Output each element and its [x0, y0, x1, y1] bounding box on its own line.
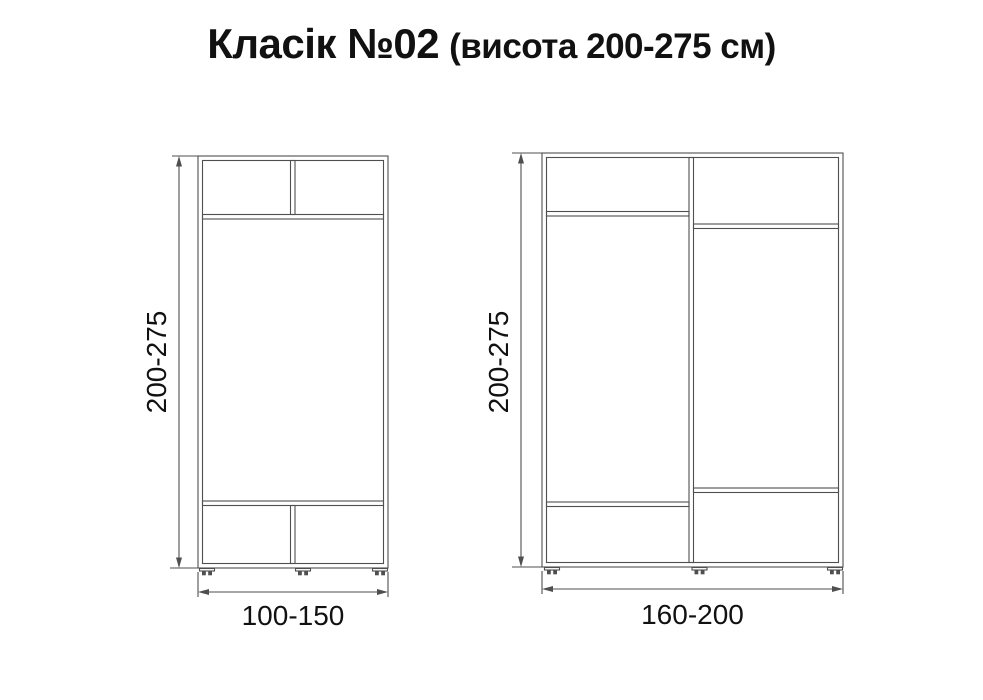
arrow-left-icon: [542, 586, 553, 592]
arrow-right-icon: [377, 589, 388, 595]
cabinet-outline: [198, 156, 388, 568]
height-dimension-label: 200-275: [483, 311, 514, 414]
width-dimension: 100-150: [198, 572, 388, 631]
arrow-up-icon: [176, 156, 182, 167]
wardrobe-diagram: 200-275 100-150: [0, 0, 983, 700]
foot: [545, 568, 560, 575]
cabinet-outline: [542, 153, 843, 567]
height-dimension-label: 200-275: [141, 311, 172, 414]
foot: [828, 568, 843, 575]
height-dimension: 200-275: [483, 153, 542, 567]
right-wardrobe-drawing: 200-275 160-200: [483, 153, 843, 630]
width-dimension: 160-200: [542, 571, 843, 630]
left-wardrobe-drawing: 200-275 100-150: [141, 156, 388, 631]
width-dimension-label: 100-150: [242, 600, 345, 631]
foot: [296, 569, 311, 576]
arrow-right-icon: [832, 586, 843, 592]
height-dimension: 200-275: [141, 156, 198, 568]
foot: [692, 568, 707, 575]
arrow-left-icon: [198, 589, 209, 595]
foot: [200, 569, 215, 576]
arrow-down-icon: [518, 557, 524, 568]
arrow-up-icon: [518, 153, 524, 164]
arrow-down-icon: [176, 558, 182, 569]
width-dimension-label: 160-200: [641, 599, 744, 630]
foot: [373, 569, 388, 576]
